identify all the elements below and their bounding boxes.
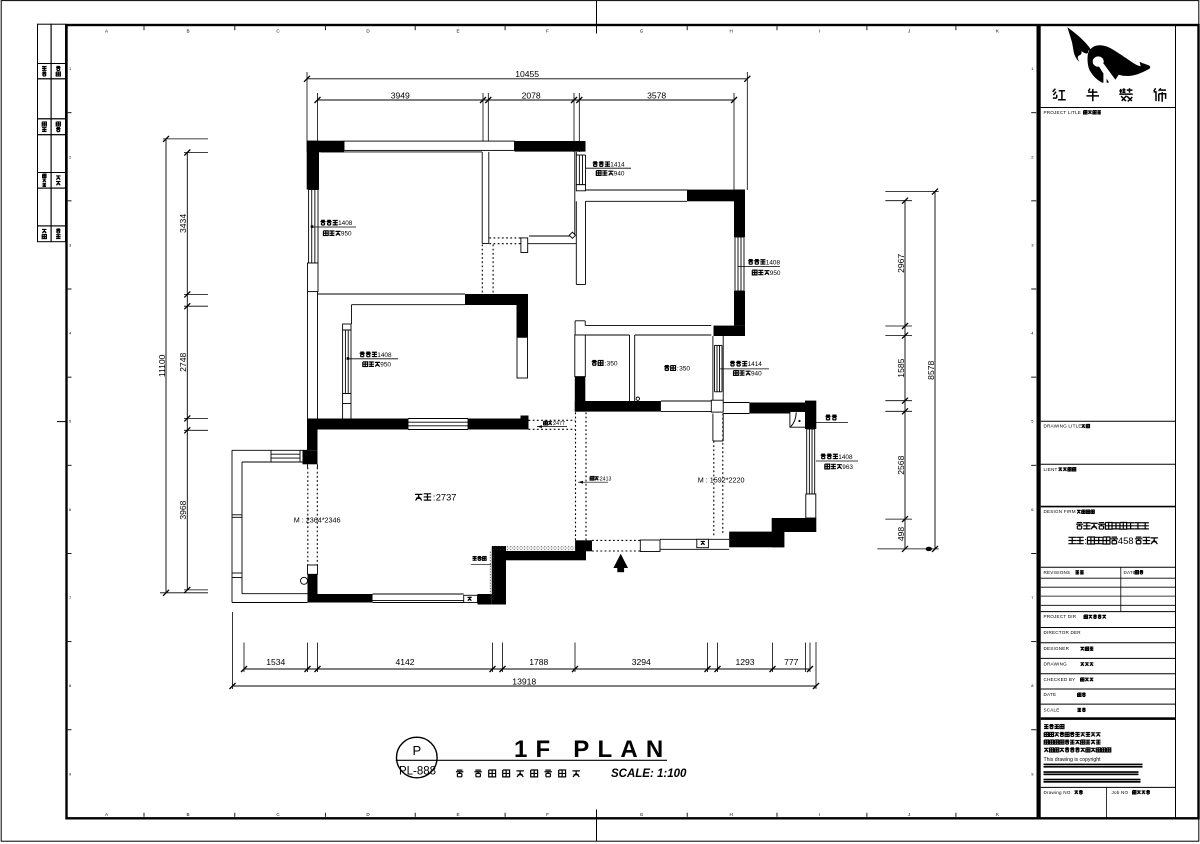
svg-text:F: F xyxy=(546,812,549,817)
svg-text:Drawing NO: Drawing NO xyxy=(1044,790,1071,795)
svg-text:2737: 2737 xyxy=(436,493,457,503)
svg-text:DESIGN FIRM: DESIGN FIRM xyxy=(1044,509,1076,514)
svg-text:950: 950 xyxy=(341,231,352,238)
svg-text:10455: 10455 xyxy=(515,69,539,79)
svg-text:P: P xyxy=(412,743,421,758)
svg-text:E: E xyxy=(456,28,459,33)
svg-text:8578: 8578 xyxy=(926,360,936,379)
svg-text:1408: 1408 xyxy=(338,220,353,227)
svg-text:DRAWING: DRAWING xyxy=(1044,662,1068,667)
svg-text:DIRECTOR DER: DIRECTOR DER xyxy=(1044,630,1082,635)
svg-text:950: 950 xyxy=(380,362,391,369)
svg-text:940: 940 xyxy=(751,370,762,377)
svg-text:3294: 3294 xyxy=(632,657,651,667)
svg-text:J: J xyxy=(908,28,910,33)
svg-text:H: H xyxy=(730,28,733,33)
svg-text:DRAWING LITLE: DRAWING LITLE xyxy=(1044,424,1082,429)
svg-text:2967: 2967 xyxy=(896,254,906,273)
svg-text:LIENT: LIENT xyxy=(1044,467,1058,472)
svg-text:350: 350 xyxy=(679,366,690,373)
svg-text:B: B xyxy=(186,28,189,33)
svg-text:458: 458 xyxy=(1118,535,1134,546)
svg-text:940: 940 xyxy=(614,170,625,177)
svg-text:950: 950 xyxy=(770,270,781,277)
svg-text:4142: 4142 xyxy=(395,657,414,667)
svg-text:I: I xyxy=(819,28,820,33)
svg-text:3949: 3949 xyxy=(391,90,410,100)
svg-text:SCALE: 1:100: SCALE: 1:100 xyxy=(611,768,687,780)
svg-text:PL-888: PL-888 xyxy=(399,766,436,778)
svg-text:1534: 1534 xyxy=(266,657,285,667)
svg-text:CHECKED BY: CHECKED BY xyxy=(1044,677,1076,682)
svg-text:3434: 3434 xyxy=(178,214,188,233)
svg-text:2748: 2748 xyxy=(178,353,188,372)
svg-text:963: 963 xyxy=(842,464,853,471)
svg-text:1408: 1408 xyxy=(377,352,392,359)
svg-text:1788: 1788 xyxy=(529,657,548,667)
svg-text:DESIGNER: DESIGNER xyxy=(1044,646,1070,651)
svg-text:1408: 1408 xyxy=(838,454,853,461)
svg-text:PROJECT LITLE: PROJECT LITLE xyxy=(1044,110,1082,115)
svg-text:2568: 2568 xyxy=(896,455,906,474)
svg-text:1414: 1414 xyxy=(748,361,763,368)
svg-text:3578: 3578 xyxy=(647,90,666,100)
svg-text:This drawing is copyright: This drawing is copyright xyxy=(1044,757,1102,763)
svg-text:M : 2364*2346: M : 2364*2346 xyxy=(294,515,341,524)
svg-text:1414: 1414 xyxy=(610,162,625,169)
svg-text:2078: 2078 xyxy=(522,90,541,100)
svg-text:11100: 11100 xyxy=(157,354,167,377)
svg-text:2413: 2413 xyxy=(600,476,612,482)
svg-text:350: 350 xyxy=(607,360,618,367)
svg-text:DATE: DATE xyxy=(1124,570,1137,575)
svg-text:SCALE: SCALE xyxy=(1044,707,1060,712)
svg-text:E: E xyxy=(456,812,459,817)
svg-text:I: I xyxy=(819,812,820,817)
svg-text:777: 777 xyxy=(784,657,799,667)
svg-text:1F PLAN: 1F PLAN xyxy=(514,736,671,763)
svg-text:1293: 1293 xyxy=(735,657,754,667)
svg-text:498: 498 xyxy=(896,527,906,542)
svg-text:REVISIONS: REVISIONS xyxy=(1044,570,1071,575)
svg-text:Job NO: Job NO xyxy=(1112,790,1129,795)
svg-text:1585: 1585 xyxy=(896,358,906,377)
svg-text:M : 1592*2220: M : 1592*2220 xyxy=(698,475,745,484)
svg-text:B: B xyxy=(186,812,189,817)
svg-text:PROJECT DIR: PROJECT DIR xyxy=(1044,614,1077,619)
svg-text:G: G xyxy=(640,812,644,817)
svg-text:13918: 13918 xyxy=(512,676,536,686)
svg-text:F: F xyxy=(546,28,549,33)
svg-text:3968: 3968 xyxy=(178,500,188,519)
svg-text:H: H xyxy=(730,812,733,817)
svg-text::: : xyxy=(1084,535,1087,546)
svg-text:G: G xyxy=(640,28,644,33)
svg-text:1408: 1408 xyxy=(766,259,781,266)
svg-text:J: J xyxy=(908,812,910,817)
svg-text:DATE: DATE xyxy=(1044,692,1057,697)
